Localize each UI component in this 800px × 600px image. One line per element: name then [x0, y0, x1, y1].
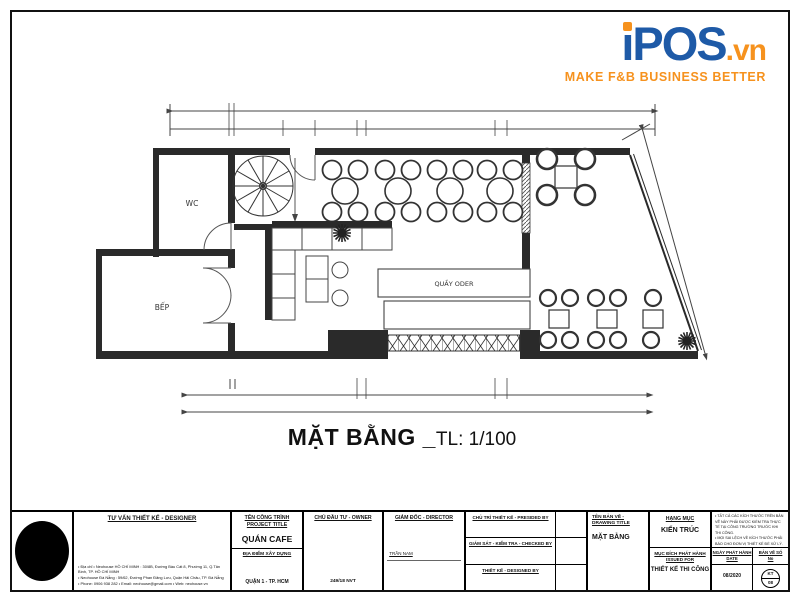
- project-cell: TÊN CÔNG TRÌNH PROJECT TITLE QUÁN CAFE Đ…: [232, 512, 304, 590]
- director-signature-line: TRẦN NAM: [387, 542, 461, 561]
- approval-label: GIÁM SÁT - KIỂM TRA - CHECKED BY: [466, 538, 555, 563]
- drawing-caption-scale: TL: 1/100: [436, 429, 516, 450]
- issue-date-header: NGÀY PHÁT HÀNH DATE: [712, 548, 752, 565]
- floor-plan-drawing: WC BẾP QUẦY ODER: [90, 98, 722, 420]
- director-header: GIÁM ĐỐC - DIRECTOR: [395, 515, 453, 522]
- approval-label: THIẾT KẾ - DESIGNED BY: [466, 565, 555, 590]
- issue-date-header-en: DATE: [712, 556, 752, 562]
- room-label-kitchen: BẾP: [155, 302, 170, 312]
- ipos-logo: iPOS.vn MAKE F&B BUSINESS BETTER: [565, 20, 766, 84]
- approval-signature-box: [555, 538, 586, 563]
- sheet-number-top: KT: [762, 570, 779, 579]
- designer-header: TƯ VẤN THIẾT KẾ - DESIGNER: [108, 516, 197, 524]
- plant-icon: [678, 332, 696, 350]
- designer-address: • Địa chỉ • Neohouse HỒ CHÍ MINH : 30/8B…: [74, 562, 230, 590]
- issue-section: MỤC ĐÍCH PHÁT HÀNH ISSUED FOR THIẾT KẾ T…: [650, 548, 710, 590]
- owner-header: CHỦ ĐẦU TƯ - OWNER: [314, 515, 371, 522]
- sheet-number-stamp: KT 08: [761, 569, 780, 588]
- logo-suffix-vn: .vn: [726, 34, 766, 67]
- glass-partition: [522, 163, 530, 233]
- sheet-number-header-en: No: [753, 556, 788, 562]
- drawing-title-value: MẶT BẰNG: [592, 534, 630, 541]
- director-name: TRẦN NAM: [389, 551, 413, 556]
- bar-seat-strip: [388, 335, 520, 351]
- drawing-title-cell: TÊN BẢN VẼ - DRAWING TITLE MẶT BẰNG: [588, 512, 650, 590]
- location-label: ĐỊA ĐIỂM XÂY DỰNG: [243, 552, 292, 558]
- company-logo-circle: [15, 521, 69, 581]
- category-section: HẠNG MỤC KIẾN TRÚC: [650, 512, 710, 548]
- address-line: • Địa chỉ • Neohouse HỒ CHÍ MINH : 30/8B…: [78, 564, 226, 576]
- issue-date-cell: NGÀY PHÁT HÀNH DATE 08/2020: [712, 548, 753, 590]
- logo-tagline: MAKE F&B BUSINESS BETTER: [565, 71, 766, 84]
- room-label-wc: WC: [186, 199, 199, 208]
- issue-date-header-vi: NGÀY PHÁT HÀNH: [712, 550, 752, 556]
- approval-label: CHỦ TRÌ THIẾT KẾ - PRESIDED BY: [466, 512, 555, 537]
- issue-value: THIẾT KẾ THI CÔNG: [651, 567, 709, 573]
- title-block: TƯ VẤN THIẾT KẾ - DESIGNER • Địa chỉ • N…: [12, 510, 788, 590]
- plant-icon: [333, 224, 351, 242]
- drawing-caption: MẶT BẰNG _TL: 1/100: [72, 424, 732, 451]
- category-header: HẠNG MỤC: [666, 516, 695, 523]
- order-counter-label: QUẦY ODER: [434, 278, 474, 288]
- top-dimension-lines: [170, 103, 655, 136]
- project-header: TÊN CÔNG TRÌNH PROJECT TITLE: [245, 515, 290, 529]
- category-value: KIẾN TRÚC: [661, 527, 699, 534]
- logo-letter-i: i: [621, 17, 632, 70]
- approval-row: CHỦ TRÌ THIẾT KẾ - PRESIDED BY: [466, 512, 586, 538]
- issue-header-en: ISSUED FOR: [654, 557, 705, 563]
- sheet-number-cell: BẢN VẼ SỐ No KT 08: [753, 548, 788, 590]
- slanted-wall: [630, 154, 702, 351]
- sheet-border-frame: iPOS.vn MAKE F&B BUSINESS BETTER: [10, 10, 790, 592]
- drawing-title-header: TÊN BẢN VẼ - DRAWING TITLE: [592, 515, 644, 527]
- owner-value: 249/18 NVT: [330, 579, 356, 584]
- round-table-clusters: [323, 161, 523, 222]
- approval-signature-box: [555, 512, 586, 537]
- director-cell: GIÁM ĐỐC - DIRECTOR TRẦN NAM: [384, 512, 466, 590]
- note-line: • MỌI SAI LỆCH VỀ KÍCH THƯỚC PHẢI BÁO CH…: [715, 536, 785, 547]
- meta-row: NGÀY PHÁT HÀNH DATE 08/2020 BẢN VẼ SỐ No…: [712, 548, 788, 590]
- issue-header: MỤC ĐÍCH PHÁT HÀNH ISSUED FOR: [654, 551, 705, 563]
- location-value: QUẬN 1 - TP. HCM: [245, 579, 288, 585]
- note-line: • TẤT CẢ CÁC KÍCH THƯỚC TRÊN BẢN VẼ NÀY …: [715, 514, 785, 536]
- project-header-en: PROJECT TITLE: [245, 522, 290, 529]
- title-block-logo-cell: [12, 512, 74, 590]
- project-location: ĐỊA ĐIỂM XÂY DỰNG QUẬN 1 - TP. HCM: [232, 548, 302, 591]
- project-header-vi: TÊN CÔNG TRÌNH: [245, 515, 290, 522]
- address-line: • Phone: 0906 938 282 • Email: neohouse@…: [78, 581, 226, 587]
- bottom-dimension-lines: [185, 378, 650, 412]
- sofa-corner: [265, 221, 392, 320]
- category-cell: HẠNG MỤC KIẾN TRÚC MỤC ĐÍCH PHÁT HÀNH IS…: [650, 512, 712, 590]
- approval-row: THIẾT KẾ - DESIGNED BY: [466, 565, 586, 590]
- project-name: QUÁN CAFE: [242, 534, 293, 544]
- ipos-logo-wordmark: iPOS.vn: [565, 20, 766, 67]
- approval-signature-box: [555, 565, 586, 590]
- sheet-number-bottom: 08: [762, 579, 779, 587]
- approvals-cell: CHỦ TRÌ THIẾT KẾ - PRESIDED BY GIÁM SÁT …: [466, 512, 588, 590]
- notes-and-meta-cell: • TẤT CẢ CÁC KÍCH THƯỚC TRÊN BẢN VẼ NÀY …: [712, 512, 788, 590]
- spiral-staircase: [233, 156, 293, 216]
- general-notes: • TẤT CẢ CÁC KÍCH THƯỚC TRÊN BẢN VẼ NÀY …: [712, 512, 788, 548]
- sheet-number-header: BẢN VẼ SỐ No: [753, 548, 788, 565]
- logo-letters-pos: POS: [632, 17, 725, 70]
- owner-cell: CHỦ ĐẦU TƯ - OWNER 249/18 NVT: [304, 512, 384, 590]
- approval-row: GIÁM SÁT - KIỂM TRA - CHECKED BY: [466, 538, 586, 564]
- drawing-caption-title: MẶT BẰNG _: [288, 424, 436, 450]
- issue-date-value: 08/2020: [723, 573, 741, 579]
- order-counter: [378, 269, 530, 329]
- square-table-clusters: [537, 149, 663, 348]
- designer-cell: TƯ VẤN THIẾT KẾ - DESIGNER • Địa chỉ • N…: [74, 512, 232, 590]
